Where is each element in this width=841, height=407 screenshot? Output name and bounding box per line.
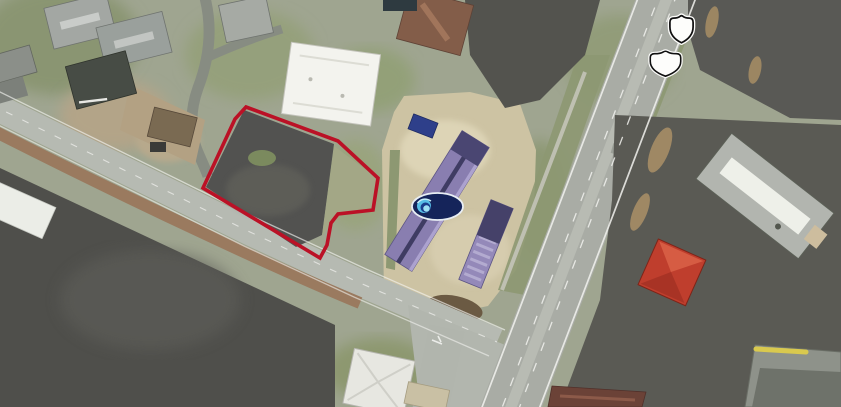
tidal-wave-logo <box>411 192 464 221</box>
building-bottom-right <box>745 345 841 407</box>
wave-icon <box>417 199 431 213</box>
dark-pool <box>383 0 417 11</box>
aerial-map-canvas <box>0 0 841 407</box>
us-route-501-shield <box>646 49 685 78</box>
building-white-flat <box>281 42 380 126</box>
us-route-1-shield <box>667 13 696 45</box>
dumpster <box>150 142 166 152</box>
